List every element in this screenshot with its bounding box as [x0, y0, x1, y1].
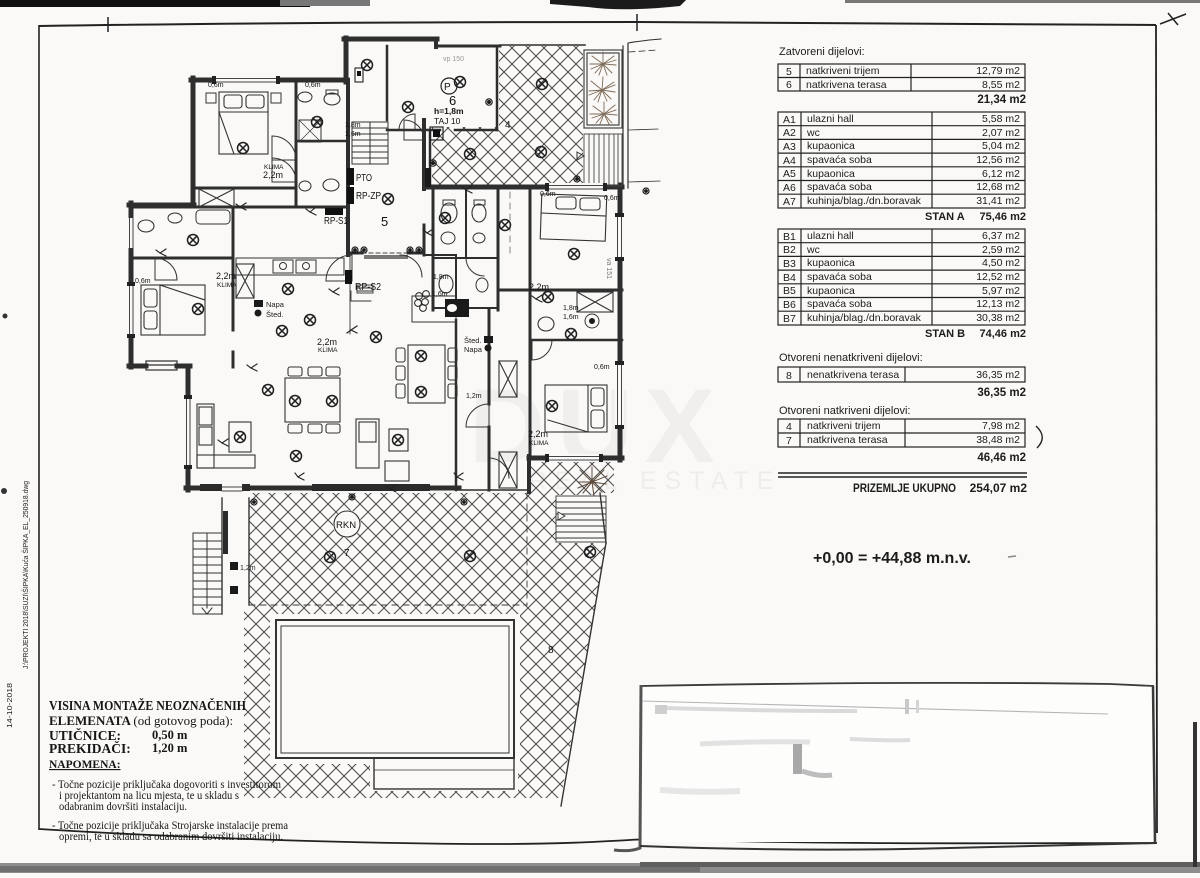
- svg-text:46,46 m2: 46,46 m2: [977, 452, 1026, 464]
- svg-text:kupaonica: kupaonica: [807, 285, 855, 297]
- svg-text:RKN: RKN: [336, 520, 356, 531]
- svg-text:odabranim dovršiti instalaciju: odabranim dovršiti instalaciju.: [59, 801, 187, 813]
- svg-text:KLIMA: KLIMA: [529, 440, 549, 447]
- svg-text:PRIZEMLJE UKUPNO: PRIZEMLJE UKUPNO: [853, 483, 956, 495]
- svg-text:7: 7: [344, 548, 350, 559]
- svg-text:36,35 m2: 36,35 m2: [976, 369, 1020, 381]
- svg-text:5: 5: [786, 66, 792, 78]
- svg-text:KLIMA: KLIMA: [318, 347, 338, 354]
- svg-text:4: 4: [505, 120, 511, 131]
- svg-text:PREKIDAČI:: PREKIDAČI:: [49, 741, 131, 756]
- svg-text:RP-S1: RP-S1: [324, 216, 348, 227]
- svg-text:7: 7: [786, 435, 792, 447]
- svg-text:Otvoreni natkriveni dijelovi:: Otvoreni natkriveni dijelovi:: [779, 405, 910, 417]
- svg-text:2,2m: 2,2m: [216, 271, 236, 281]
- svg-text:STAN B: STAN B: [925, 328, 965, 340]
- svg-text:2,2m: 2,2m: [263, 170, 283, 180]
- svg-text:1,6m: 1,6m: [432, 291, 448, 298]
- svg-text:12,79 m2: 12,79 m2: [976, 65, 1020, 77]
- svg-text:7,98 m2: 7,98 m2: [982, 420, 1020, 432]
- svg-text:h=1,8m: h=1,8m: [434, 106, 464, 116]
- svg-text:RP-S2: RP-S2: [355, 282, 381, 293]
- svg-text:1,8m: 1,8m: [433, 274, 449, 281]
- svg-text:1,2m: 1,2m: [466, 393, 482, 400]
- svg-text:kupaonica: kupaonica: [807, 140, 855, 152]
- svg-text:5: 5: [381, 214, 388, 229]
- svg-text:0,6m: 0,6m: [305, 82, 321, 89]
- svg-text:spavaća soba: spavaća soba: [807, 298, 872, 310]
- svg-text:ulazni hall: ulazni hall: [807, 230, 854, 242]
- svg-text:2,2m: 2,2m: [317, 337, 337, 347]
- svg-text:Otvoreni nenatkriveni dijelovi: Otvoreni nenatkriveni dijelovi:: [779, 352, 923, 364]
- svg-text:12,68 m2: 12,68 m2: [976, 181, 1020, 193]
- svg-text:14-10-2018: 14-10-2018: [5, 683, 14, 728]
- svg-text:spavaća soba: spavaća soba: [807, 271, 872, 283]
- svg-text:STAN A: STAN A: [925, 211, 965, 223]
- svg-text:KLIMA: KLIMA: [217, 282, 237, 289]
- svg-text:36,35 m2: 36,35 m2: [977, 387, 1026, 399]
- svg-text:8: 8: [548, 645, 554, 656]
- svg-text:B2: B2: [783, 244, 796, 256]
- svg-text:12,13 m2: 12,13 m2: [976, 298, 1020, 310]
- svg-text:NAPOMENA:: NAPOMENA:: [49, 759, 121, 771]
- svg-text:6,37 m2: 6,37 m2: [982, 230, 1020, 242]
- svg-text:spavaća soba: spavaća soba: [807, 154, 872, 166]
- svg-text:12,52 m2: 12,52 m2: [976, 271, 1020, 283]
- svg-text:Napa: Napa: [464, 345, 483, 354]
- svg-text:0,6m: 0,6m: [594, 364, 610, 371]
- svg-text:nenatkrivena terasa: nenatkrivena terasa: [807, 369, 899, 381]
- svg-text:kupaonica: kupaonica: [807, 257, 855, 269]
- svg-text:74,46 m2: 74,46 m2: [980, 328, 1026, 340]
- svg-text:kuhinja/blag./dn.boravak: kuhinja/blag./dn.boravak: [807, 312, 922, 324]
- svg-text:8: 8: [786, 370, 792, 382]
- svg-text:A7: A7: [783, 196, 796, 208]
- svg-text:wc: wc: [806, 244, 820, 256]
- svg-text:A2: A2: [783, 127, 796, 139]
- svg-text:2,59 m2: 2,59 m2: [982, 244, 1020, 256]
- svg-text:B5: B5: [783, 285, 796, 297]
- svg-text:A6: A6: [783, 182, 796, 194]
- svg-text:31,41 m2: 31,41 m2: [976, 195, 1020, 207]
- svg-text:TAJ 10: TAJ 10: [434, 116, 461, 126]
- svg-text:1,2m: 1,2m: [240, 565, 256, 572]
- svg-text:Napa: Napa: [266, 300, 285, 309]
- svg-text:ELEMENATA (od gotovog poda):: ELEMENATA (od gotovog poda):: [49, 713, 233, 728]
- svg-text:0,50 m: 0,50 m: [152, 728, 188, 742]
- svg-text:1,8m: 1,8m: [563, 305, 579, 312]
- svg-text:va 151: va 151: [605, 258, 612, 279]
- svg-text:natkrivena terasa: natkrivena terasa: [806, 79, 887, 91]
- svg-text:2,2m: 2,2m: [529, 282, 549, 292]
- svg-text:A5: A5: [783, 168, 796, 180]
- svg-text:RP-ZP: RP-ZP: [356, 191, 381, 202]
- svg-text:natkriveni trijem: natkriveni trijem: [807, 420, 881, 432]
- svg-text:spavaća soba: spavaća soba: [807, 181, 872, 193]
- svg-text:kupaonica: kupaonica: [807, 168, 855, 180]
- svg-text:kuhinja/blag./dn.boravak: kuhinja/blag./dn.boravak: [807, 195, 922, 207]
- svg-text:B3: B3: [783, 258, 796, 270]
- svg-text:6: 6: [786, 79, 792, 91]
- svg-text:2,2m: 2,2m: [528, 429, 548, 439]
- svg-text:5,04 m2: 5,04 m2: [982, 140, 1020, 152]
- svg-text:0,6m: 0,6m: [208, 82, 224, 89]
- svg-text:30,38 m2: 30,38 m2: [976, 312, 1020, 324]
- svg-text:0,6m: 0,6m: [540, 191, 556, 198]
- svg-text:38,48 m2: 38,48 m2: [976, 434, 1020, 446]
- svg-text:J:\PROJEKTI 2018\SUZI\ŠIPKA\Ku: J:\PROJEKTI 2018\SUZI\ŠIPKA\Kuća ŠIPKA_E…: [21, 481, 30, 669]
- svg-text:B4: B4: [783, 272, 796, 284]
- svg-text:8,55 m2: 8,55 m2: [982, 79, 1020, 91]
- svg-text:+0,00 = +44,88 m.n.v.: +0,00 = +44,88 m.n.v.: [813, 550, 971, 567]
- svg-text:VISINA MONTAŽE NEOZNAČENIH: VISINA MONTAŽE NEOZNAČENIH: [49, 697, 246, 714]
- svg-text:75,46 m2: 75,46 m2: [980, 211, 1026, 223]
- svg-text:B1: B1: [783, 231, 796, 243]
- svg-text:21,34 m2: 21,34 m2: [977, 94, 1026, 106]
- svg-text:1,6m: 1,6m: [563, 314, 579, 321]
- svg-text:0,6m: 0,6m: [135, 278, 151, 285]
- svg-text:0,6m: 0,6m: [604, 195, 620, 202]
- svg-text:Šted.: Šted.: [464, 336, 482, 345]
- svg-text:4: 4: [786, 421, 792, 433]
- svg-text:1,8m: 1,8m: [345, 122, 361, 129]
- svg-text:natkriveni trijem: natkriveni trijem: [806, 65, 880, 77]
- svg-text:PTO: PTO: [356, 173, 372, 184]
- svg-text:P: P: [444, 82, 451, 93]
- svg-text:ulazni hall: ulazni hall: [807, 113, 854, 125]
- svg-text:254,07 m2: 254,07 m2: [970, 481, 1028, 495]
- svg-text:A4: A4: [783, 155, 796, 167]
- svg-text:A1: A1: [783, 114, 796, 126]
- svg-text:wc: wc: [806, 127, 820, 139]
- svg-text:vp 150: vp 150: [443, 56, 464, 63]
- svg-text:Šted.: Šted.: [266, 310, 284, 319]
- svg-text:5,58 m2: 5,58 m2: [982, 113, 1020, 125]
- svg-text:5,97 m2: 5,97 m2: [982, 285, 1020, 297]
- svg-text:6,12 m2: 6,12 m2: [982, 168, 1020, 180]
- svg-text:Zatvoreni dijelovi:: Zatvoreni dijelovi:: [779, 46, 865, 58]
- svg-text:natkrivena terasa: natkrivena terasa: [807, 434, 888, 446]
- svg-text:B6: B6: [783, 299, 796, 311]
- svg-text:2,07 m2: 2,07 m2: [982, 127, 1020, 139]
- svg-text:1,6m: 1,6m: [345, 131, 361, 138]
- svg-text:4,50 m2: 4,50 m2: [982, 257, 1020, 269]
- svg-text:B7: B7: [783, 313, 796, 325]
- svg-text:12,56 m2: 12,56 m2: [976, 154, 1020, 166]
- svg-text:opremi, te u skladu sa odabran: opremi, te u skladu sa odabranim dovršit…: [59, 831, 283, 843]
- svg-text:1,20 m: 1,20 m: [152, 741, 188, 755]
- svg-text:A3: A3: [783, 141, 796, 153]
